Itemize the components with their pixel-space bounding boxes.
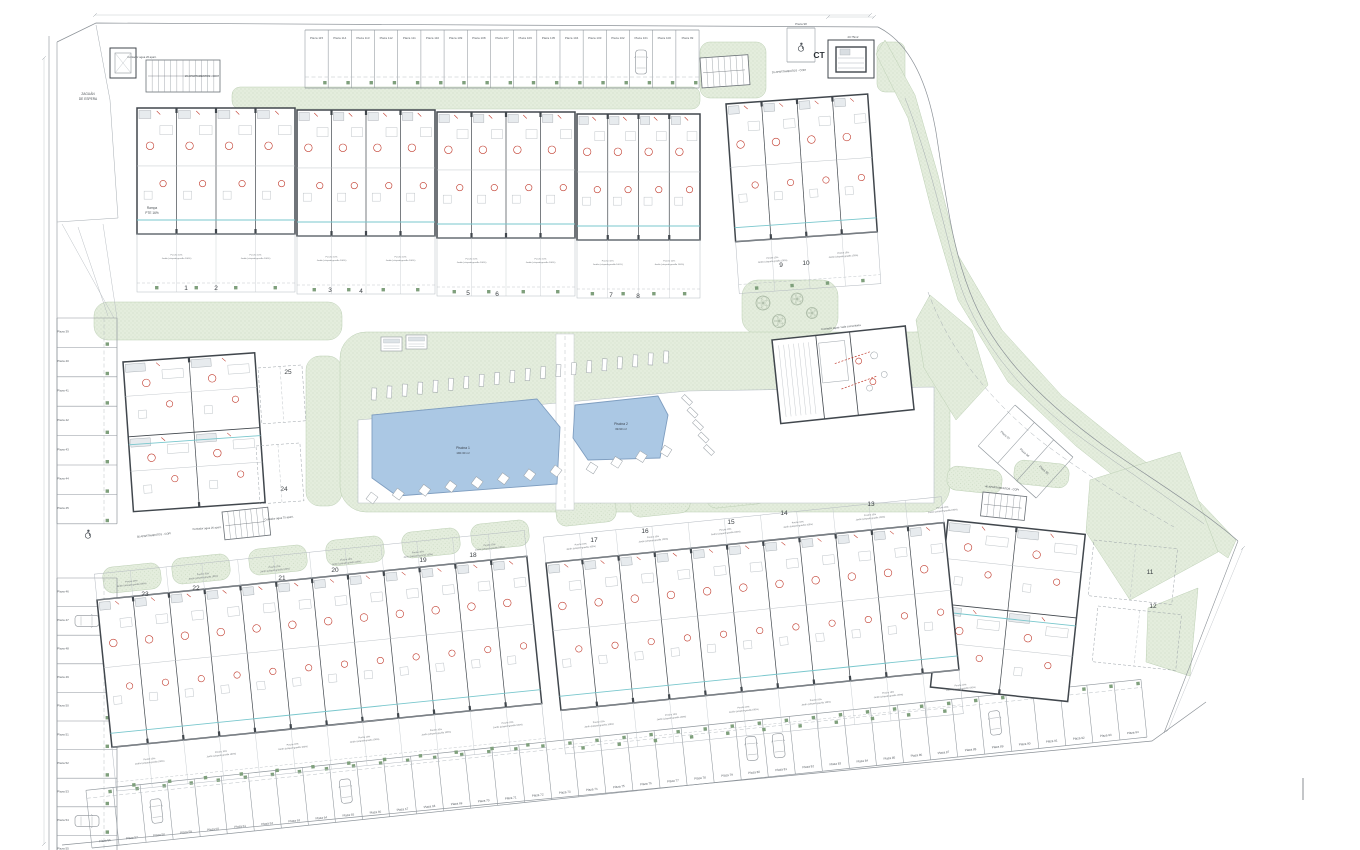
porch-note: Porche 10% — [665, 713, 677, 717]
parking-stall-label: Plaza 103 — [588, 36, 602, 40]
parking-stall-label: Plaza 45 — [57, 506, 69, 510]
planter-square — [298, 770, 302, 774]
parking-stall-label: Plaza 105 — [542, 36, 556, 40]
planter-square — [649, 733, 653, 737]
car-icon — [771, 733, 786, 758]
green-area — [171, 553, 231, 585]
block-number: 15 — [727, 519, 735, 526]
wheelchair-icon — [798, 43, 803, 52]
parking-stall-label: Plaza 73 — [559, 790, 571, 795]
parking-stall-label: Plaza 46 — [57, 589, 69, 593]
parking-stall-label: Plaza 89 — [992, 744, 1004, 749]
green-area — [946, 465, 1003, 495]
planter-square — [347, 288, 350, 291]
planter-square — [416, 81, 419, 84]
porch-note: Porche 10% — [882, 691, 894, 695]
parking-stall-label: Plaza 114 — [333, 36, 346, 40]
planter-square — [106, 489, 109, 492]
porch-note: Porche 10% — [215, 750, 227, 754]
parking-stall-label: Plaza 91 — [1046, 738, 1058, 743]
planter-square — [313, 288, 316, 291]
planter-square — [974, 699, 978, 703]
sun-lounger — [648, 353, 653, 365]
planter-square — [419, 754, 423, 758]
sun-lounger — [617, 357, 622, 369]
sun-lounger — [571, 363, 576, 375]
parking-stall-label: Plaza 66 — [369, 810, 381, 815]
planter-square — [346, 81, 349, 84]
planter-square — [757, 721, 761, 725]
planter-square — [416, 288, 419, 291]
planter-square — [439, 81, 442, 84]
block-number: 9 — [779, 262, 783, 269]
zaguan-label: ZAGUÁN — [81, 92, 95, 96]
planter-square — [907, 713, 911, 717]
porch-note: Porche 10% — [663, 260, 675, 263]
block-number: 24 — [280, 486, 288, 493]
porch-note: Porche 10% — [864, 513, 876, 517]
parking-stall-label: Plaza 102 — [611, 36, 625, 40]
planter-square — [726, 731, 730, 735]
car-icon — [75, 614, 99, 627]
planter-square — [621, 292, 624, 295]
pool-kiosk — [381, 337, 402, 351]
porch-note: Porche 10% — [287, 742, 299, 746]
parking-stall-label: Plaza 47 — [57, 618, 69, 622]
sun-lounger — [587, 361, 592, 373]
building-blocks-1-2: Porche 10%Jardín (césped+gravilla 100%)P… — [137, 108, 295, 292]
planter-square — [453, 290, 456, 293]
planter-square — [648, 81, 651, 84]
parking-stall-label: Plaza 67 — [396, 807, 408, 812]
planter-square — [216, 778, 220, 782]
porch-note: Porche 10% — [602, 260, 614, 263]
planter-square — [591, 292, 594, 295]
block-number: 4 — [359, 288, 363, 295]
planter-square — [487, 290, 490, 293]
parking-stall-label: Plaza 57 — [126, 835, 138, 840]
water-meter-note: Contador agua 26 apart. — [192, 525, 222, 531]
block-number: 11 — [1147, 569, 1154, 576]
parking-stall-label: Plaza 74 — [586, 787, 598, 792]
planter-square — [556, 290, 559, 293]
parking-stall-label: Plaza 54 — [57, 818, 69, 822]
planter-square — [323, 81, 326, 84]
planter-square — [490, 747, 494, 751]
planter-square — [625, 81, 628, 84]
pool-1-name: Piscina 1 — [456, 446, 470, 450]
parking-stall-label: Plaza 49 — [57, 675, 69, 679]
parking-stall-label: Plaza 71 — [505, 795, 517, 800]
planter-square — [509, 81, 512, 84]
planter-square — [581, 746, 585, 750]
block-number: 5 — [466, 290, 470, 297]
planter-square — [189, 781, 193, 785]
parking-stall-label: Plaza 111 — [403, 36, 416, 40]
sun-lounger — [418, 382, 423, 394]
parking-stall-label: Plaza 70 — [478, 798, 490, 803]
pool-2-area: 39.90 m² — [615, 427, 627, 431]
sun-lounger — [633, 355, 638, 367]
parking-stall-label: Plaza 75 — [613, 784, 625, 789]
block-number: 19 — [419, 557, 427, 564]
planter-square — [347, 761, 351, 765]
planter-square — [393, 81, 396, 84]
sun-lounger — [556, 365, 561, 377]
entry-stair — [700, 55, 750, 88]
community-building — [772, 326, 914, 424]
parking-stall-label: Plaza 40 — [57, 359, 69, 363]
planter-square — [383, 758, 387, 762]
site-plan-drawing: Plaza 115Plaza 114Plaza 113Plaza 112Plaz… — [0, 0, 1360, 850]
planter-square — [462, 81, 465, 84]
building-blocks-24-25 — [123, 353, 265, 512]
dimension-tick — [1241, 546, 1245, 550]
block-number: 14 — [780, 510, 788, 517]
planter-square — [555, 81, 558, 84]
sun-lounger — [464, 376, 469, 388]
zaguan-label-2: DE ESPERA — [79, 97, 98, 101]
porch-note: Porche 10% — [143, 757, 155, 761]
planter-square — [204, 776, 208, 780]
parking-stall-label: Plaza 84 — [856, 758, 868, 763]
parking-stall-label: Plaza 81 — [775, 767, 787, 772]
planter-square — [617, 742, 621, 746]
parking-stall-label: Plaza 113 — [356, 36, 369, 40]
porch-note: Porche 10% — [593, 720, 605, 724]
private-garden — [258, 365, 306, 424]
planter-square — [275, 769, 279, 773]
block-number: 13 — [867, 501, 875, 508]
planter-square — [784, 719, 788, 723]
block-number: 18 — [469, 552, 477, 559]
porch-note: Porche 10% — [737, 705, 749, 709]
parking-stall-label: Plaza 80 — [748, 770, 760, 775]
planter-square — [601, 81, 604, 84]
entry-stair — [222, 507, 271, 540]
planter-square — [839, 713, 843, 717]
garden-note: Jardín (césped+gravilla 100%) — [526, 261, 556, 264]
block-number: 20 — [331, 567, 339, 574]
planter-square — [526, 743, 530, 747]
planter-square — [234, 286, 237, 289]
parking-stall-label: Plaza 43 — [57, 447, 69, 451]
porch-note: Porche 10% — [326, 256, 338, 259]
planter-square — [106, 401, 109, 404]
garden-note: Jardín (césped+gravilla 100%) — [162, 257, 192, 260]
garden-note: Jardín (césped+gravilla 100%) — [241, 257, 271, 260]
planter-square — [311, 765, 315, 769]
planter-square — [485, 81, 488, 84]
porch-note: Porche 10% — [171, 254, 183, 257]
parking-stall-label: Plaza 72 — [532, 792, 544, 797]
porch-note: Porche 10% — [466, 258, 478, 261]
entry-stair — [980, 492, 1026, 520]
planter-square — [654, 739, 658, 743]
parking-stall-label: Plaza 88 — [965, 747, 977, 752]
parking-stall-label: Plaza 83 — [829, 761, 841, 766]
planter-square — [106, 519, 109, 522]
building-blocks-3-4: Porche 10%Jardín (césped+gravilla 100%)P… — [297, 110, 435, 294]
block-number: 10 — [802, 260, 810, 267]
ramp-label: Rampa — [147, 206, 158, 210]
parking-stall-label: Plaza 50 — [57, 704, 69, 708]
planter-square — [243, 775, 247, 779]
planter-square — [106, 431, 109, 434]
sun-lounger — [387, 386, 392, 398]
transformer-label: CT — [813, 50, 825, 60]
parking-stall-label: Plaza 78 — [694, 775, 706, 780]
planter-square — [578, 81, 581, 84]
planter-square — [271, 773, 275, 777]
planter-square — [861, 279, 865, 283]
parking-stall-label: Plaza 62 — [261, 821, 273, 826]
car-icon — [149, 798, 164, 823]
green-area — [1013, 459, 1070, 489]
sun-lounger — [663, 351, 668, 363]
block-number: 2 — [214, 285, 218, 292]
parking-stall-label: Plaza 59 — [180, 829, 192, 834]
planter-square — [730, 724, 734, 728]
porch-note: Porche 10% — [395, 256, 407, 259]
parking-stall-label: Plaza 96 — [1019, 447, 1031, 458]
parking-stall-label: Plaza 110 — [426, 36, 439, 40]
sun-lounger — [448, 378, 453, 390]
planter-square — [1136, 682, 1140, 686]
wheelchair-icon — [85, 530, 90, 539]
planter-square — [703, 727, 707, 731]
parking-stall-label: Plaza 92 — [1073, 736, 1085, 741]
garden-note: Jardín (césped+gravilla 100%) — [386, 259, 416, 262]
garden-note: Jardín (césped+gravilla 100%) — [654, 263, 684, 266]
green-area — [306, 356, 342, 506]
block-number: 7 — [609, 292, 613, 299]
porch-note: Porche 10% — [430, 728, 442, 732]
planter-square — [762, 728, 766, 732]
parking-stall-label: Plaza 109 — [449, 36, 463, 40]
pool-2-name: Piscina 2 — [614, 422, 628, 426]
parking-stall-label: Plaza 82 — [802, 764, 814, 769]
building-blocks-5-6: Porche 10%Jardín (césped+gravilla 100%)P… — [437, 112, 575, 296]
porch-note: Porche 10% — [250, 254, 262, 257]
parking-stall-label: Plaza 56 — [99, 838, 111, 843]
car-icon — [75, 815, 99, 828]
parking-stall-label: Plaza 85 — [883, 756, 895, 761]
sun-lounger — [371, 388, 376, 400]
planter-square — [694, 81, 697, 84]
building-blocks-18-23: Porche 10%Jardín (césped+gravilla 100%)P… — [94, 530, 546, 791]
porch-note: Porche 10% — [719, 528, 731, 532]
planter-square — [108, 790, 112, 794]
planter-square — [106, 342, 109, 345]
parking-stall-label: Plaza 98 — [795, 22, 807, 26]
parking-stall-label: Plaza 53 — [57, 790, 69, 794]
planter-square — [382, 288, 385, 291]
block-number: 6 — [495, 291, 499, 298]
planter-square — [893, 707, 897, 711]
block-number: 8 — [636, 293, 640, 300]
porch-note: Porche 10% — [792, 520, 804, 524]
parking-stall-label: Plaza 39 — [57, 330, 69, 334]
sun-lounger — [479, 374, 484, 386]
sun-lounger — [402, 384, 407, 396]
planter-square — [676, 730, 680, 734]
parking-stall-label: Plaza 93 — [1100, 733, 1112, 738]
block-number: 21 — [278, 575, 286, 582]
site-plan-page: Plaza 115Plaza 114Plaza 113Plaza 112Plaz… — [0, 0, 1360, 850]
pool-kiosk — [406, 335, 427, 349]
planter-square — [812, 716, 816, 720]
water-meter-note: Contador agua 26 apart. — [127, 55, 156, 59]
porch-note: Porche 10% — [837, 251, 849, 255]
sun-lounger — [540, 366, 545, 378]
planter-square — [106, 372, 109, 375]
planter-square — [671, 81, 674, 84]
porch-note: Porche 10% — [358, 735, 370, 739]
planter-square — [155, 286, 158, 289]
porch-note: Porche 10% — [766, 256, 778, 260]
sun-lounger — [433, 380, 438, 392]
planter-square — [195, 286, 198, 289]
parking-col-left-upper: Plaza 39Plaza 40Plaza 41Plaza 42Plaza 43… — [57, 318, 117, 524]
parking-stall-label: Plaza 100 — [658, 36, 672, 40]
green-area — [94, 302, 342, 340]
parking-stall-label: Plaza 77 — [667, 778, 679, 783]
garden-note: Jardín (césped+gravilla 100%) — [317, 259, 347, 262]
parking-stall-label: Plaza 115 — [310, 36, 323, 40]
pool-1-area: 190.30 m² — [456, 451, 470, 455]
planter-square — [652, 292, 655, 295]
planter-square — [370, 81, 373, 84]
planter-square — [168, 779, 172, 783]
lobby-boundary — [57, 25, 118, 222]
sun-lounger — [510, 370, 515, 382]
block-number: 3 — [328, 287, 332, 294]
parking-stall-label: Plaza 60 — [207, 827, 219, 832]
car-icon — [744, 736, 759, 761]
planter-square — [871, 717, 875, 721]
planter-square — [532, 81, 535, 84]
planter-square — [866, 710, 870, 714]
green-area — [232, 87, 700, 109]
planter-square — [943, 709, 947, 713]
sun-lounger — [602, 359, 607, 371]
block-number: 22 — [192, 585, 200, 592]
planter-square — [826, 281, 830, 285]
parking-stall-label: Plaza 101 — [634, 36, 648, 40]
porch-note: Porche 10% — [810, 698, 822, 702]
parking-stall-label: Plaza 87 — [937, 750, 949, 755]
planter-square — [239, 772, 243, 776]
porch-note: Porche 10% — [575, 542, 587, 546]
planter-square — [454, 750, 458, 754]
parking-stall-label: Plaza 51 — [57, 732, 69, 736]
planter-square — [1109, 684, 1113, 688]
porch-note: Porche 10% — [647, 535, 659, 539]
planter-square — [683, 292, 686, 295]
parking-stall-label: Plaza 94 — [1127, 730, 1139, 735]
block-number: 1 — [184, 285, 188, 292]
parking-stall-label: Plaza 58 — [153, 832, 165, 837]
planter-square — [690, 735, 694, 739]
planter-square — [920, 704, 924, 708]
planter-square — [798, 724, 802, 728]
transformer-station — [828, 40, 874, 78]
parking-stall-label: Plaza 48 — [57, 647, 69, 651]
parking-stall-label: Plaza 107 — [495, 36, 509, 40]
car-icon — [987, 710, 1002, 735]
parking-stall-label: Plaza 69 — [451, 801, 463, 806]
planter-square — [790, 284, 794, 288]
parking-stall-label: Plaza 41 — [57, 389, 69, 393]
ramp-label-2: PTE 16% — [145, 211, 159, 215]
planter-square — [522, 290, 525, 293]
planter-square — [106, 745, 109, 748]
porch-note: Porche 10% — [501, 721, 513, 725]
block-number: 16 — [641, 528, 649, 535]
phase-note: 36 APARTAMENTOS - COPI — [137, 531, 172, 539]
building-blocks-13-17: Porche 10%Jardín (césped+gravilla 100%)P… — [543, 495, 978, 754]
block-number: 17 — [590, 537, 598, 544]
planter-square — [1082, 687, 1086, 691]
elevator-shaft — [110, 48, 136, 78]
parking-stall-label: Plaza 65 — [342, 812, 354, 817]
building-blocks-7-8: Porche 10%Jardín (césped+gravilla 100%)P… — [577, 114, 700, 298]
parking-stall-label: Plaza 61 — [234, 824, 246, 829]
phase-note: 26 APARTAMENTOS - COPI — [772, 68, 807, 74]
transformer-area: 20.75m2 — [848, 35, 859, 39]
planter-square — [834, 720, 838, 724]
parking-stall-label: Plaza 106 — [519, 36, 533, 40]
parking-stall-label: Plaza 97 — [1000, 430, 1012, 441]
planter-square — [1001, 696, 1005, 700]
planter-square — [325, 767, 329, 771]
parking-stall-label: Plaza 76 — [640, 781, 652, 786]
parking-stall-label: Plaza 99 — [682, 36, 694, 40]
block-number: 25 — [284, 369, 292, 376]
sun-lounger — [525, 368, 530, 380]
car-icon — [338, 779, 353, 804]
block-number: 23 — [141, 591, 149, 598]
planter-square — [106, 830, 109, 833]
parking-stall-label: Plaza 52 — [57, 761, 69, 765]
sun-lounger — [494, 372, 499, 384]
planter-square — [106, 773, 109, 776]
parking-stall-label: Plaza 112 — [380, 36, 393, 40]
green-area — [1086, 452, 1218, 600]
block-number: 12 — [1149, 603, 1157, 610]
parking-stall-label: Plaza 44 — [57, 477, 69, 481]
parking-stall-label: Plaza 68 — [423, 804, 435, 809]
porch-note: Porche 10% — [535, 258, 547, 261]
parking-stall-label: Plaza 86 — [910, 753, 922, 758]
garden-note: Jardín (césped+gravilla 100%) — [457, 261, 487, 264]
parking-stall-98: Plaza 98 — [787, 22, 815, 62]
planter-square — [132, 783, 136, 787]
parking-stall-label: Plaza 108 — [472, 36, 486, 40]
parking-stall-label: Plaza 42 — [57, 418, 69, 422]
planter-square — [274, 286, 277, 289]
parking-row-top: Plaza 115Plaza 114Plaza 113Plaza 112Plaz… — [305, 30, 699, 88]
planter-square — [106, 802, 109, 805]
planter-square — [947, 701, 951, 705]
planter-square — [755, 286, 759, 290]
garden-note: Jardín (césped+gravilla 100%) — [593, 263, 623, 266]
parking-stall-label: Plaza 90 — [1019, 741, 1031, 746]
phase-note: 26 APARTAMENTOS - COPI — [185, 74, 220, 78]
car-icon — [635, 50, 648, 74]
parking-stall-label: Plaza 104 — [565, 36, 579, 40]
